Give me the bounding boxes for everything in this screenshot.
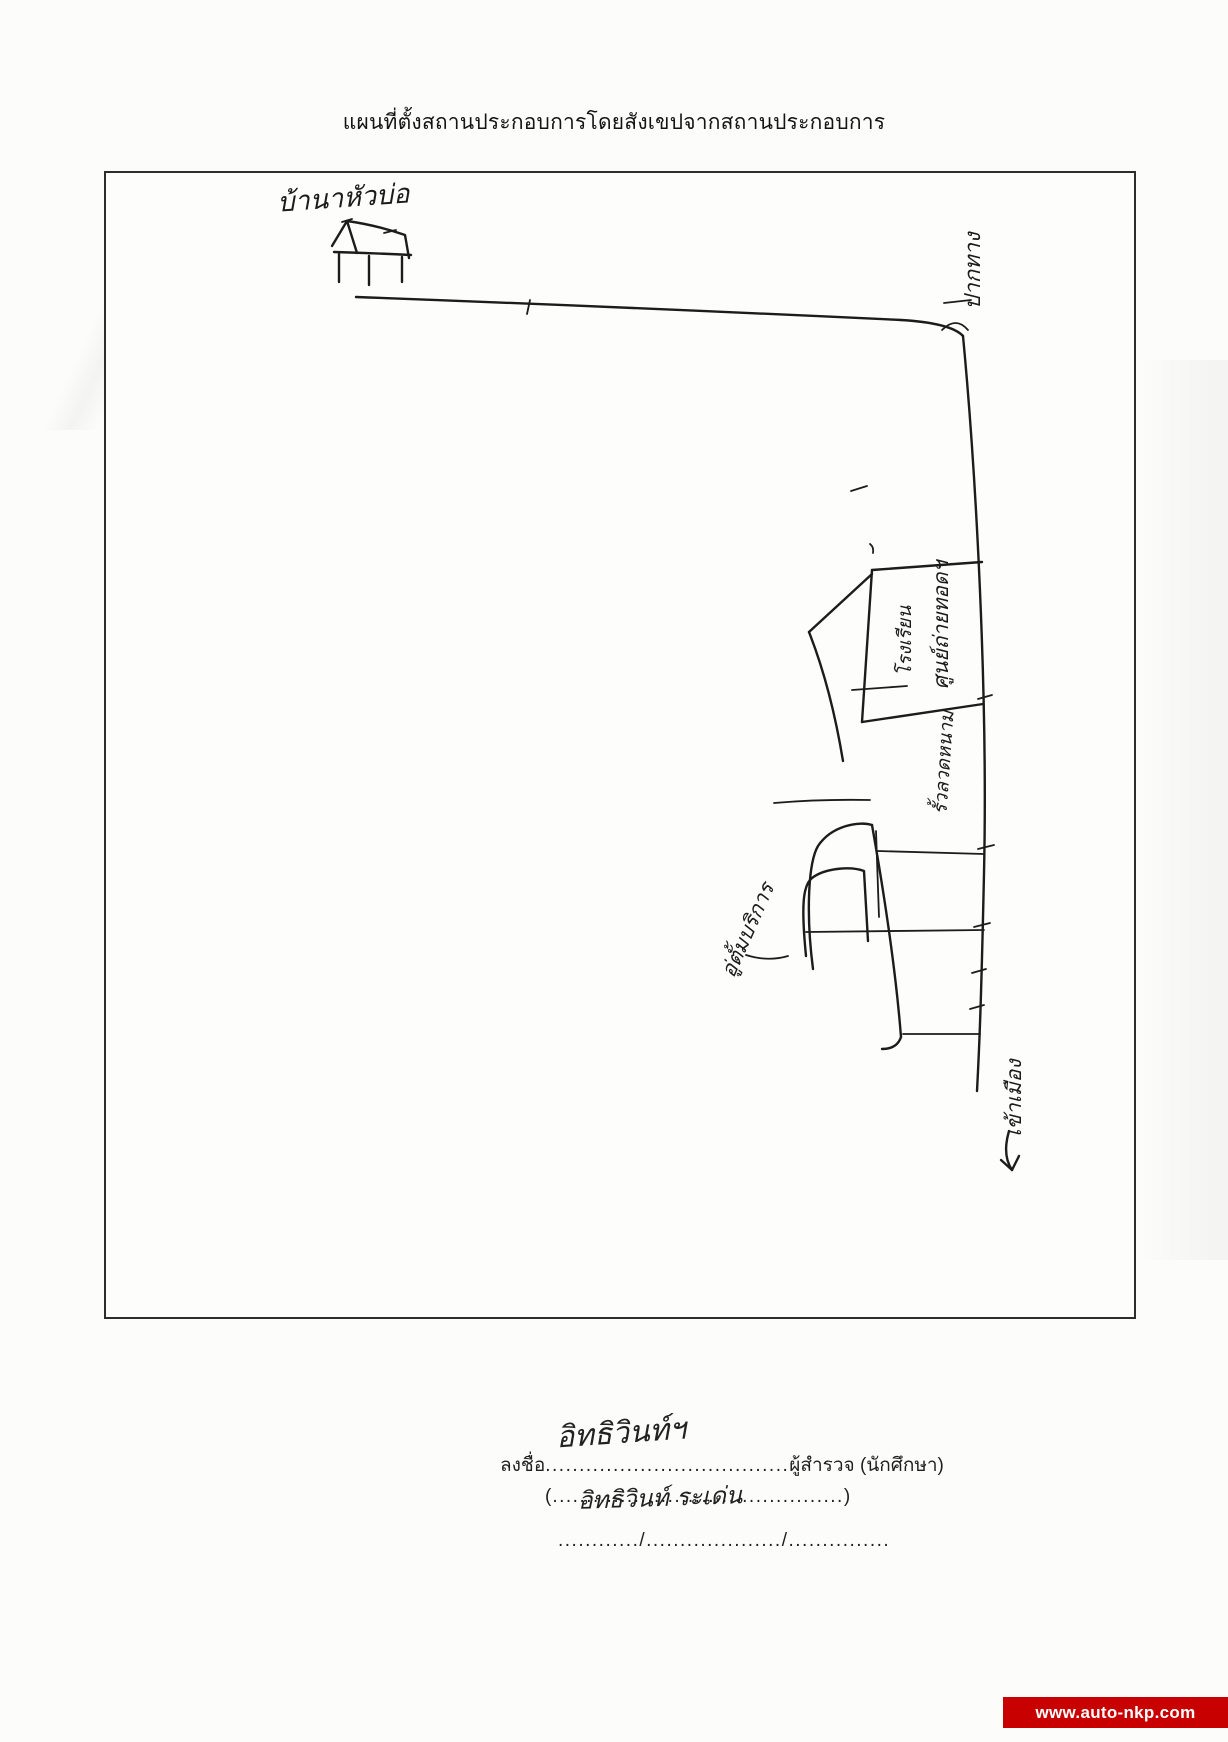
- map-border-box: บ้านาหัวบ่อ ปากทาง: [104, 171, 1136, 1319]
- center-building-label-main: ศูนย์ถ่ายทอดฯ: [929, 558, 954, 689]
- center-building-label-sub: โรงเรียน: [893, 605, 916, 677]
- website-watermark: www.auto-nkp.com: [1003, 1697, 1228, 1728]
- garage-label: อู่ตั้มบริการ: [713, 875, 781, 981]
- sign-suffix: ผู้สำรวจ (นักศึกษา): [789, 1455, 944, 1476]
- date-line: ............/..................../......…: [558, 1530, 890, 1552]
- hand-drawn-map: บ้านาหัวบ่อ ปากทาง: [106, 173, 1134, 1317]
- house-sketch: [332, 219, 411, 285]
- to-town-label: เข้าเมือง: [1002, 1058, 1026, 1137]
- handwritten-name: อิทธิวินท์ ระเด่น: [577, 1475, 742, 1520]
- road-entrance-label: ปากทาง: [961, 230, 986, 309]
- roadside-label: รั้วลวดหนาม: [925, 708, 958, 815]
- scan-crease: [1138, 360, 1228, 1260]
- paren-close: ): [844, 1486, 851, 1507]
- sign-prefix: ลงชื่อ: [500, 1455, 545, 1476]
- garage-sketch: [746, 800, 984, 1049]
- village-label: บ้านาหัวบ่อ: [276, 178, 412, 218]
- handwritten-signature: อิทธิวินท์ฯ: [555, 1406, 688, 1462]
- scanned-document-page: { "document": { "title": "แผนที่ตั้งสถาน…: [0, 0, 1228, 1742]
- top-road-line: [356, 297, 971, 336]
- document-title: แผนที่ตั้งสถานประกอบการโดยสังเขปจากสถานป…: [0, 106, 1228, 139]
